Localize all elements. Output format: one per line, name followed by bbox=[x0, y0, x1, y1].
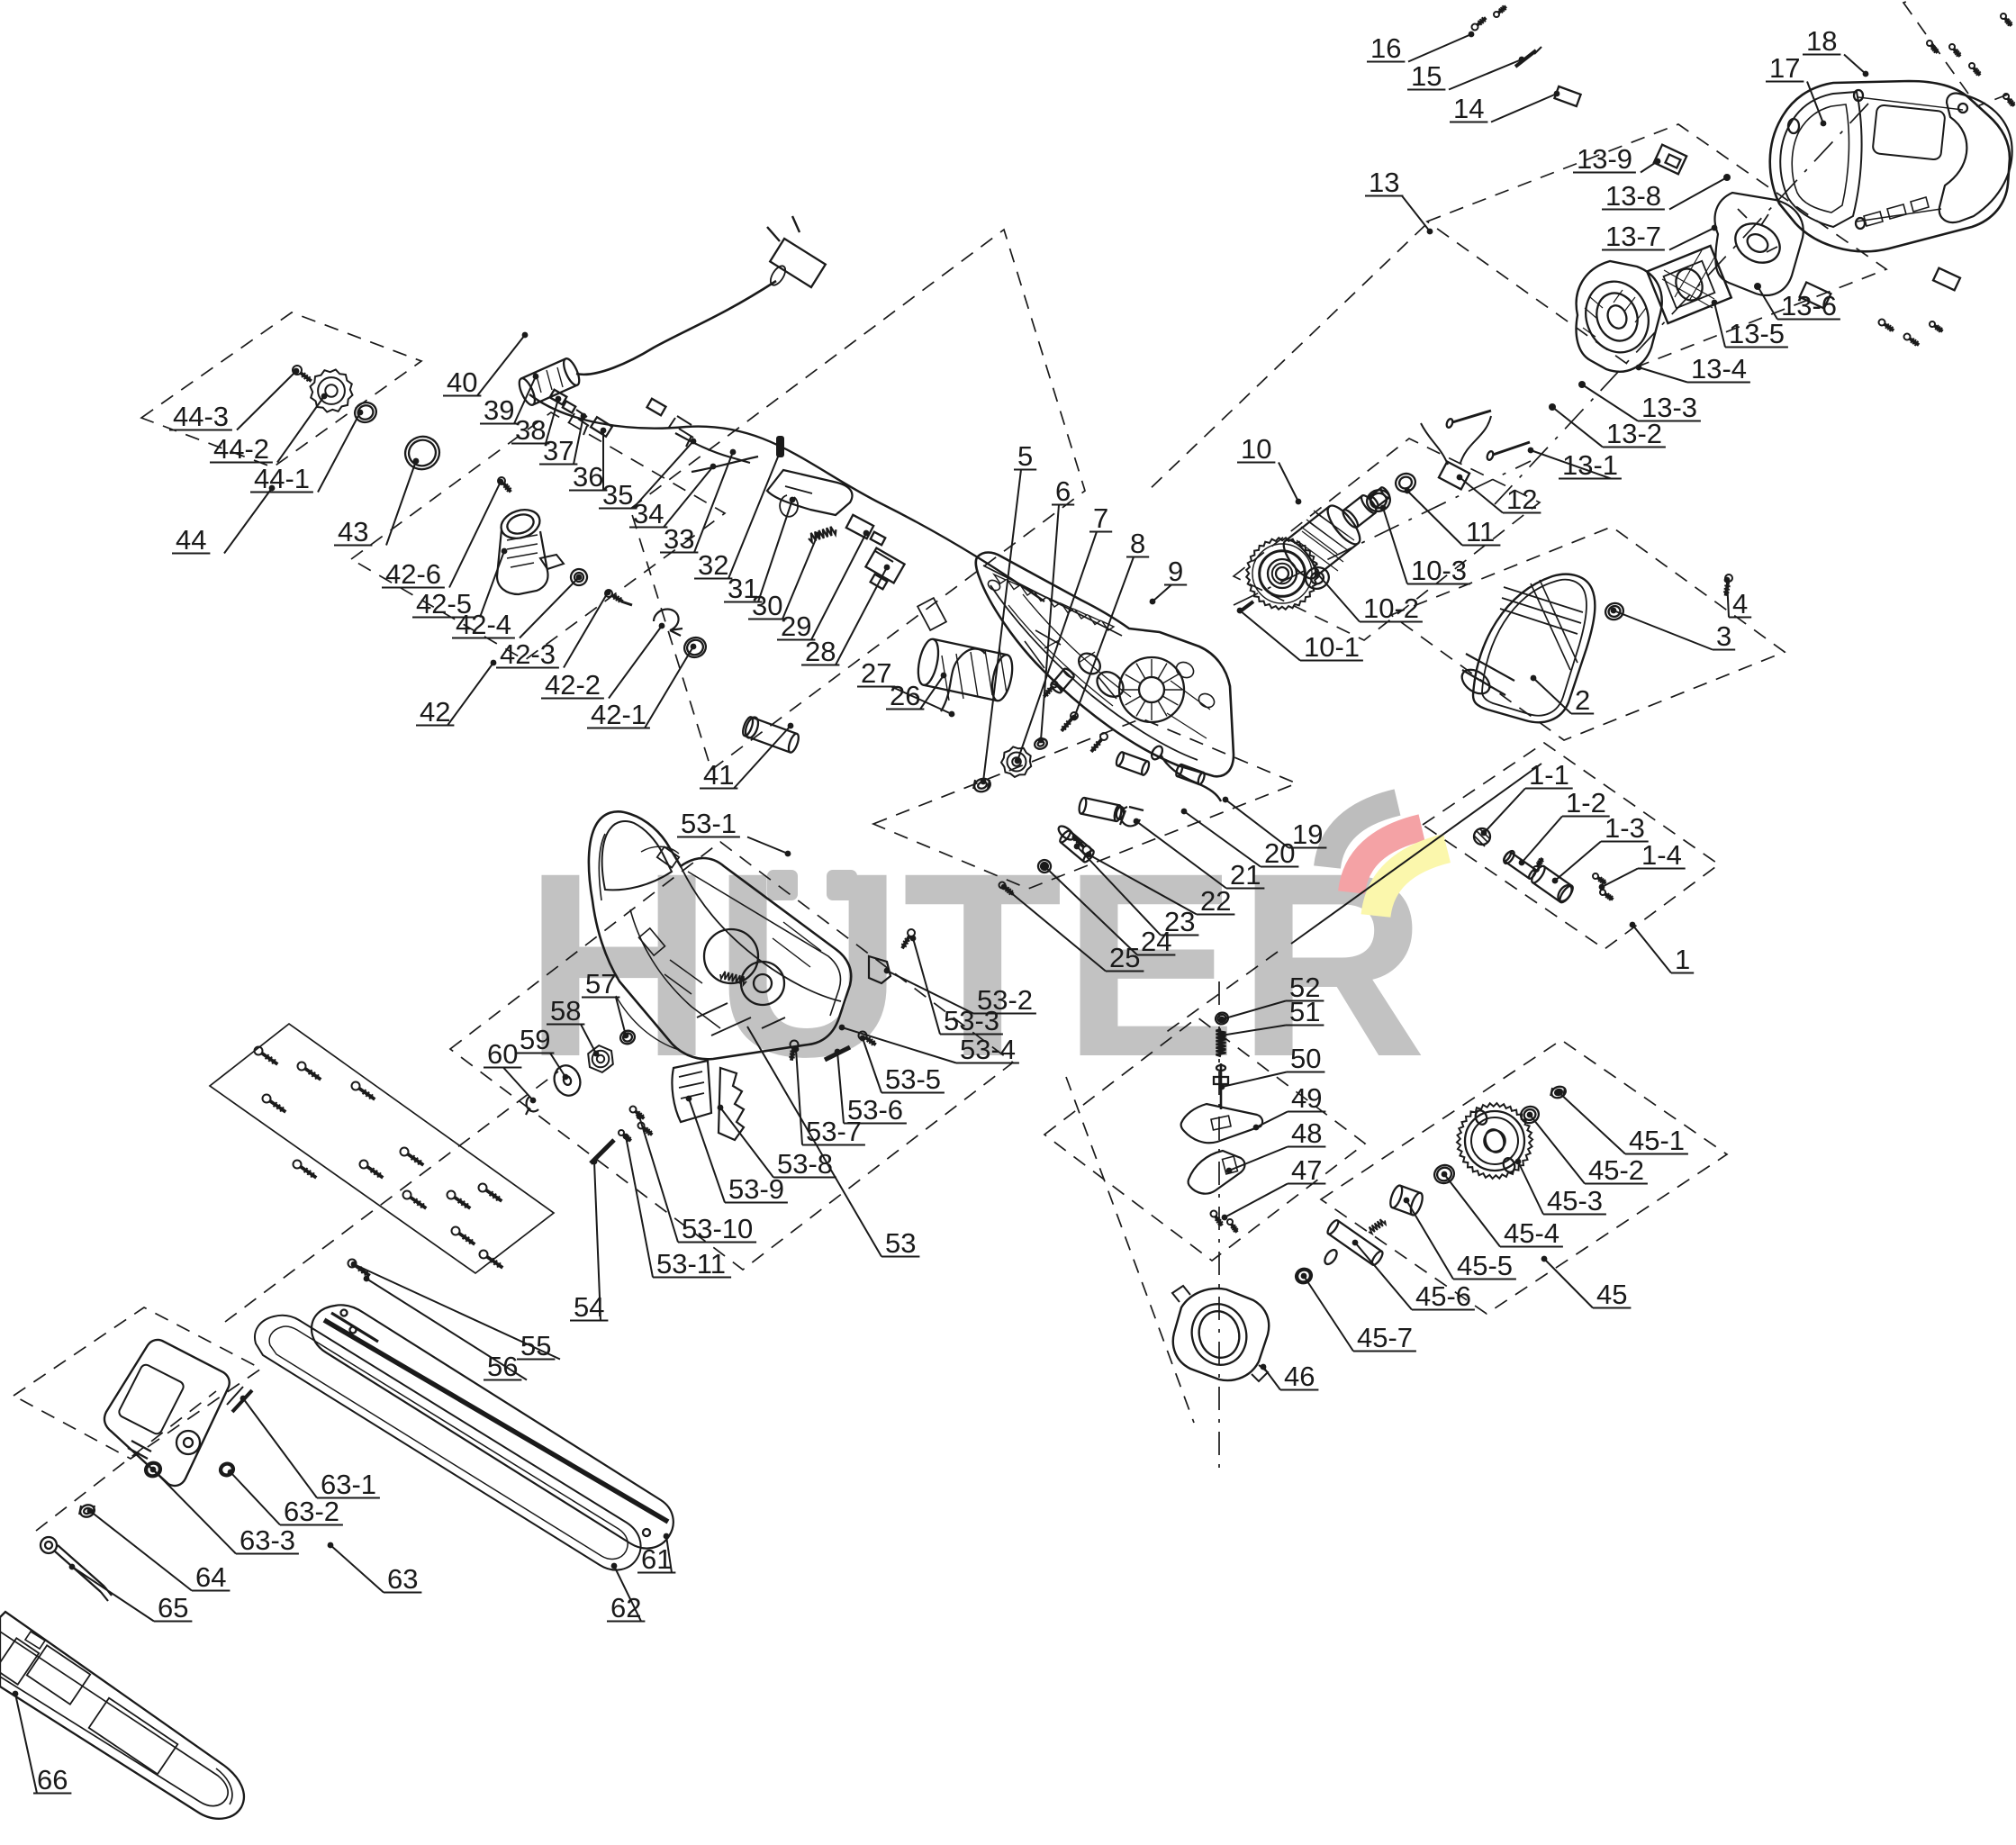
svg-text:14: 14 bbox=[1453, 93, 1484, 124]
svg-text:17: 17 bbox=[1769, 52, 1800, 84]
svg-text:1-4: 1-4 bbox=[1641, 839, 1682, 871]
svg-text:5: 5 bbox=[1017, 440, 1033, 472]
svg-text:1: 1 bbox=[1675, 944, 1690, 975]
svg-text:26: 26 bbox=[890, 680, 920, 711]
svg-text:45-4: 45-4 bbox=[1504, 1217, 1559, 1249]
svg-text:3: 3 bbox=[1716, 620, 1731, 652]
svg-text:42-1: 42-1 bbox=[591, 699, 646, 730]
svg-text:42: 42 bbox=[420, 696, 450, 728]
svg-text:57: 57 bbox=[585, 968, 616, 999]
svg-text:53-10: 53-10 bbox=[682, 1213, 753, 1244]
svg-text:31: 31 bbox=[728, 573, 758, 604]
svg-text:46: 46 bbox=[1284, 1361, 1315, 1392]
svg-text:42-6: 42-6 bbox=[385, 558, 441, 590]
svg-text:49: 49 bbox=[1291, 1082, 1322, 1114]
svg-text:39: 39 bbox=[484, 394, 514, 426]
svg-text:56: 56 bbox=[487, 1351, 518, 1382]
svg-text:10-2: 10-2 bbox=[1363, 592, 1419, 624]
svg-text:42-2: 42-2 bbox=[545, 669, 601, 701]
svg-text:66: 66 bbox=[37, 1764, 68, 1795]
svg-text:29: 29 bbox=[781, 610, 811, 642]
svg-text:22: 22 bbox=[1200, 885, 1231, 917]
svg-text:62: 62 bbox=[610, 1592, 641, 1623]
svg-text:53-11: 53-11 bbox=[656, 1248, 726, 1280]
svg-text:64: 64 bbox=[195, 1561, 226, 1593]
svg-text:43: 43 bbox=[338, 516, 368, 547]
svg-text:45-1: 45-1 bbox=[1629, 1125, 1685, 1156]
svg-text:1-3: 1-3 bbox=[1605, 812, 1645, 844]
svg-text:63: 63 bbox=[387, 1563, 418, 1595]
svg-text:45-3: 45-3 bbox=[1547, 1185, 1603, 1216]
svg-text:53-1: 53-1 bbox=[681, 808, 737, 839]
svg-text:42-4: 42-4 bbox=[456, 609, 511, 640]
svg-text:40: 40 bbox=[447, 366, 477, 398]
svg-text:53: 53 bbox=[885, 1227, 916, 1259]
svg-text:59: 59 bbox=[520, 1024, 550, 1055]
svg-text:10: 10 bbox=[1241, 433, 1271, 465]
svg-text:13-9: 13-9 bbox=[1577, 143, 1632, 175]
svg-text:55: 55 bbox=[520, 1330, 551, 1361]
svg-text:16: 16 bbox=[1370, 32, 1401, 64]
svg-text:9: 9 bbox=[1168, 556, 1183, 587]
svg-text:44-1: 44-1 bbox=[254, 463, 310, 494]
svg-text:13-4: 13-4 bbox=[1691, 353, 1747, 384]
svg-text:44: 44 bbox=[176, 524, 206, 556]
svg-text:24: 24 bbox=[1141, 926, 1171, 957]
svg-text:53-4: 53-4 bbox=[960, 1034, 1016, 1065]
svg-text:20: 20 bbox=[1264, 837, 1295, 869]
svg-text:44-2: 44-2 bbox=[213, 433, 269, 465]
svg-text:42-3: 42-3 bbox=[500, 638, 556, 670]
svg-text:1-1: 1-1 bbox=[1529, 759, 1569, 791]
svg-text:45-2: 45-2 bbox=[1588, 1154, 1644, 1186]
svg-text:13-2: 13-2 bbox=[1606, 418, 1662, 449]
svg-text:12: 12 bbox=[1506, 484, 1537, 515]
svg-text:48: 48 bbox=[1291, 1117, 1322, 1149]
svg-text:13-7: 13-7 bbox=[1605, 221, 1661, 252]
svg-text:45: 45 bbox=[1596, 1279, 1627, 1310]
svg-text:53-5: 53-5 bbox=[885, 1063, 941, 1095]
svg-text:13: 13 bbox=[1369, 167, 1399, 198]
svg-text:27: 27 bbox=[861, 657, 891, 689]
svg-text:6: 6 bbox=[1055, 475, 1071, 507]
svg-text:47: 47 bbox=[1291, 1154, 1322, 1186]
svg-text:21: 21 bbox=[1230, 859, 1261, 891]
svg-text:25: 25 bbox=[1109, 942, 1140, 973]
svg-text:7: 7 bbox=[1093, 502, 1108, 534]
svg-text:45-7: 45-7 bbox=[1357, 1322, 1413, 1353]
svg-text:10-3: 10-3 bbox=[1411, 555, 1467, 586]
svg-text:13-6: 13-6 bbox=[1781, 290, 1837, 321]
svg-text:18: 18 bbox=[1806, 25, 1837, 57]
svg-text:53-8: 53-8 bbox=[777, 1148, 833, 1180]
svg-text:13-8: 13-8 bbox=[1605, 180, 1661, 212]
svg-text:45-6: 45-6 bbox=[1415, 1280, 1471, 1312]
svg-text:60: 60 bbox=[487, 1038, 518, 1070]
svg-text:4: 4 bbox=[1732, 588, 1748, 620]
svg-text:10-1: 10-1 bbox=[1304, 631, 1360, 663]
svg-text:8: 8 bbox=[1130, 528, 1145, 559]
svg-text:15: 15 bbox=[1411, 60, 1442, 92]
svg-text:38: 38 bbox=[515, 414, 546, 446]
svg-text:53-3: 53-3 bbox=[944, 1005, 999, 1036]
svg-text:19: 19 bbox=[1292, 818, 1323, 850]
svg-text:33: 33 bbox=[664, 523, 694, 555]
svg-text:11: 11 bbox=[1466, 516, 1495, 547]
svg-text:1-2: 1-2 bbox=[1566, 787, 1606, 818]
svg-text:50: 50 bbox=[1290, 1043, 1321, 1074]
svg-text:65: 65 bbox=[158, 1592, 188, 1623]
svg-text:63-2: 63-2 bbox=[284, 1496, 339, 1527]
svg-text:35: 35 bbox=[602, 479, 633, 511]
svg-text:41: 41 bbox=[703, 759, 734, 791]
svg-text:58: 58 bbox=[550, 995, 581, 1027]
svg-text:45-5: 45-5 bbox=[1457, 1250, 1513, 1281]
svg-text:44-3: 44-3 bbox=[173, 401, 229, 432]
svg-text:53-9: 53-9 bbox=[728, 1173, 784, 1205]
svg-text:32: 32 bbox=[698, 549, 728, 581]
svg-text:36: 36 bbox=[573, 461, 603, 493]
svg-text:52: 52 bbox=[1289, 972, 1320, 1003]
svg-text:2: 2 bbox=[1575, 684, 1590, 716]
svg-text:13-5: 13-5 bbox=[1729, 318, 1785, 349]
svg-text:63-3: 63-3 bbox=[240, 1524, 295, 1556]
